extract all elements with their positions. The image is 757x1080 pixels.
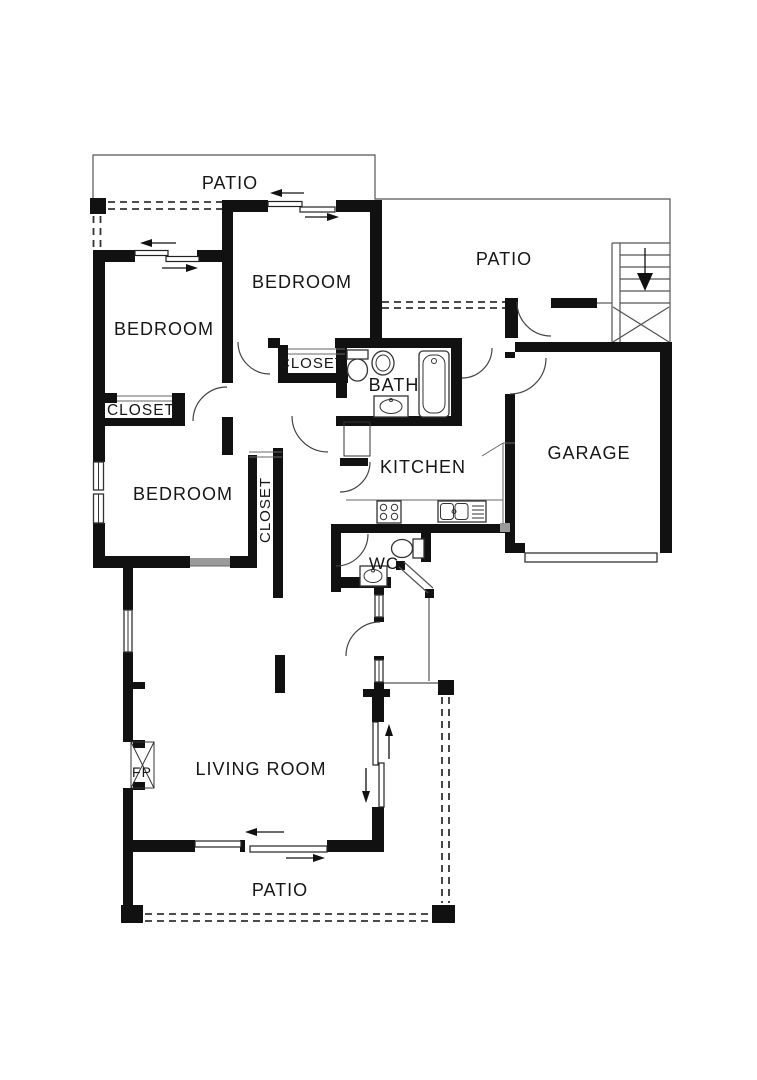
label-garage: GARAGE <box>547 443 630 463</box>
door-arc <box>292 416 328 452</box>
door-swings <box>193 302 551 656</box>
label-fireplace: FP <box>132 764 152 780</box>
entry-post <box>505 298 518 338</box>
slide-arrow-icon <box>286 854 325 862</box>
door-arc <box>462 348 492 378</box>
window <box>375 595 383 617</box>
window <box>124 610 132 652</box>
label-closet-upper-left: CLOSET <box>107 402 175 419</box>
patio-corner-post <box>438 680 454 695</box>
window <box>94 494 104 523</box>
label-living-room: LIVING ROOM <box>195 759 326 779</box>
opening-header <box>190 558 230 566</box>
window <box>94 462 104 490</box>
refrigerator <box>344 422 370 456</box>
slide-arrow-icon <box>270 189 304 197</box>
label-bedroom-top: BEDROOM <box>252 272 352 292</box>
pedestal-sink <box>372 351 394 375</box>
label-bedroom-upper-left: BEDROOM <box>114 319 214 339</box>
label-closet-hall: CLOSET <box>279 355 345 372</box>
slide-arrow-icon <box>385 724 393 759</box>
window <box>375 660 383 682</box>
stove <box>377 501 401 523</box>
slide-arrow-icon <box>362 768 370 803</box>
entry-door-arc <box>517 302 551 336</box>
label-bedroom-lower-left: BEDROOM <box>133 484 233 504</box>
slide-arrow-icon <box>162 264 198 272</box>
patio-corner-post <box>432 905 455 923</box>
kitchen-sink <box>438 501 486 522</box>
patio-corner-post <box>90 198 106 214</box>
room-divider-wall <box>275 655 285 693</box>
bathtub <box>419 351 449 417</box>
slide-arrow-icon <box>140 239 176 247</box>
slide-arrow-icon <box>305 213 339 221</box>
label-closet-bedroom: CLOSET <box>257 477 274 543</box>
door-arc <box>346 622 380 656</box>
label-patio-bottom: PATIO <box>252 880 308 900</box>
label-patio-top-right: PATIO <box>476 249 532 269</box>
label-patio-top-left: PATIO <box>202 173 258 193</box>
label-kitchen: KITCHEN <box>380 457 466 477</box>
label-wc: WC <box>369 554 399 573</box>
floor-plan: PATIO PATIO BEDROOM BEDROOM CLOSET CLOSE… <box>0 0 757 1080</box>
stairs <box>612 243 670 342</box>
door-arc <box>193 387 227 421</box>
door-arc <box>340 462 370 492</box>
patio-corner-post <box>121 905 143 923</box>
slide-arrow-icon <box>245 828 284 836</box>
vanity-sink <box>374 396 408 417</box>
floor-plan-drawing: PATIO PATIO BEDROOM BEDROOM CLOSET CLOSE… <box>0 0 757 1080</box>
label-bath: BATH <box>369 375 420 395</box>
toilet <box>347 350 368 381</box>
room-labels: PATIO PATIO BEDROOM BEDROOM CLOSET CLOSE… <box>107 173 631 900</box>
kitchen-counter <box>346 443 515 524</box>
garage-door-arc <box>510 358 546 394</box>
garage-door <box>525 553 657 562</box>
door-arc <box>238 342 270 374</box>
